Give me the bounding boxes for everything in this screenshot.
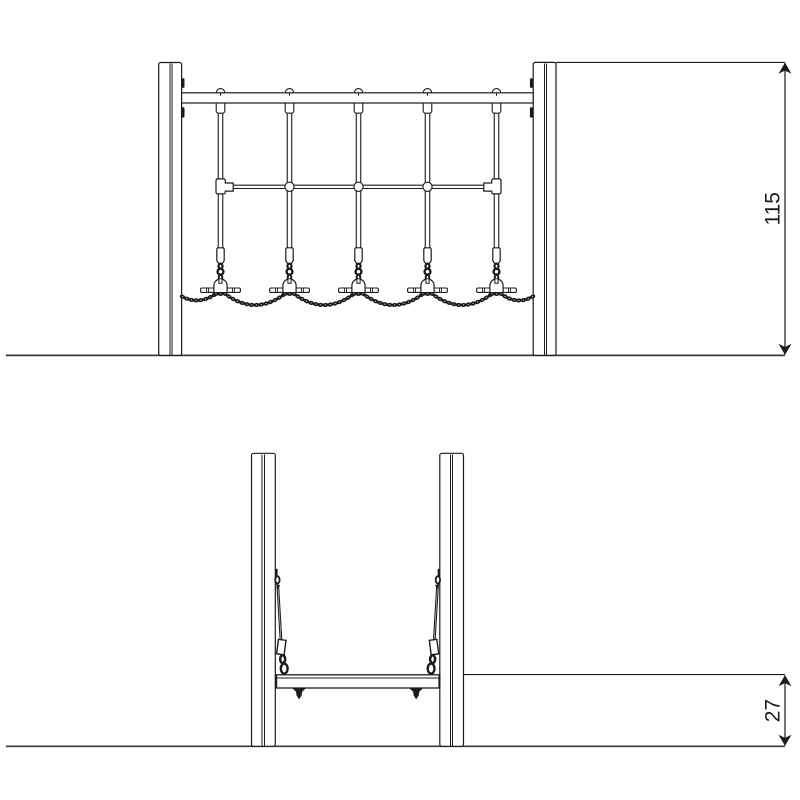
svg-text:115: 115 — [762, 192, 785, 225]
svg-text:27: 27 — [762, 699, 785, 722]
